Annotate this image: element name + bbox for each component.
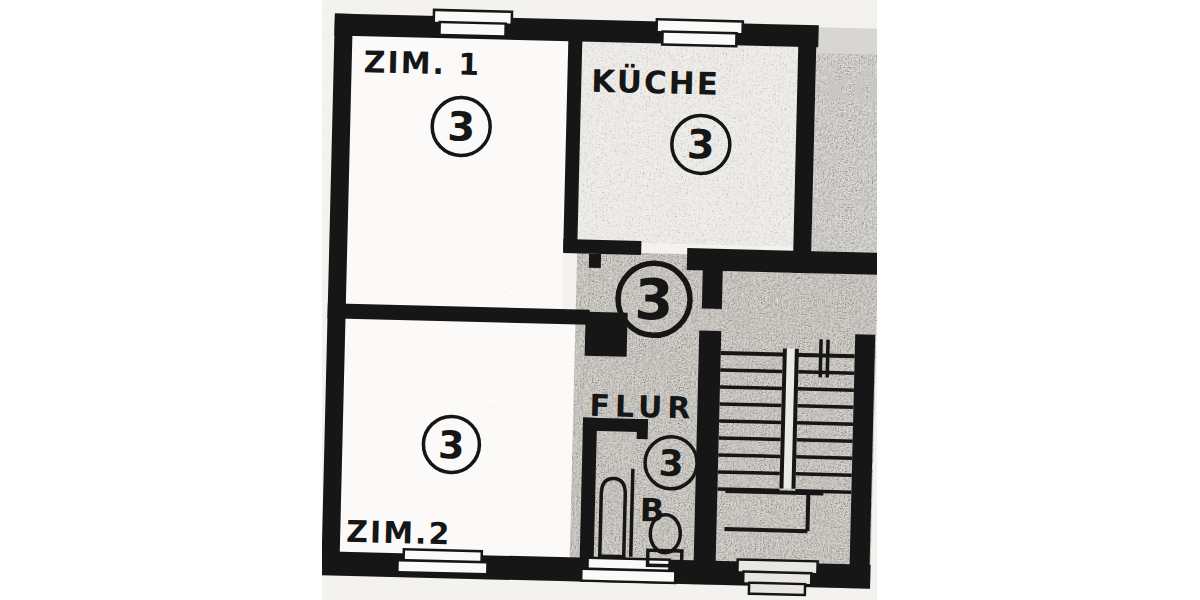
floor-plan-scan: KÜC (0, 0, 1200, 600)
zim2-label: ZIM.2 (346, 514, 452, 552)
wall-hall-landing-stub (702, 265, 723, 309)
zim1-label: ZIM. 1 (363, 44, 481, 82)
kueche-number: 3 (686, 121, 715, 168)
bath-partition-line (631, 469, 633, 557)
kueche-label: KÜCHE (591, 63, 720, 102)
flur-label: FLUR (589, 388, 696, 426)
entrance-steps (737, 559, 818, 595)
stair-landing-edge-1 (725, 491, 823, 493)
zim2-number: 3 (438, 423, 466, 468)
window-bath (581, 558, 676, 583)
paper-margin-right (877, 0, 1200, 600)
window-kueche (656, 19, 743, 46)
plan-group: KÜC (321, 7, 908, 597)
floor-plan-svg: KÜC (0, 0, 1200, 600)
faded-wall-band (816, 27, 884, 55)
hallway-number: 3 (634, 267, 675, 333)
stair-landing-edge-3 (724, 529, 807, 531)
kueche-door-jamb (589, 254, 601, 268)
paper-margin-left (0, 0, 322, 600)
window-zim2 (397, 549, 488, 574)
flur-number: 3 (658, 442, 684, 484)
stair-landing-edge-2 (807, 493, 808, 531)
zim1-number: 3 (447, 103, 476, 150)
window-zim1 (433, 10, 512, 37)
